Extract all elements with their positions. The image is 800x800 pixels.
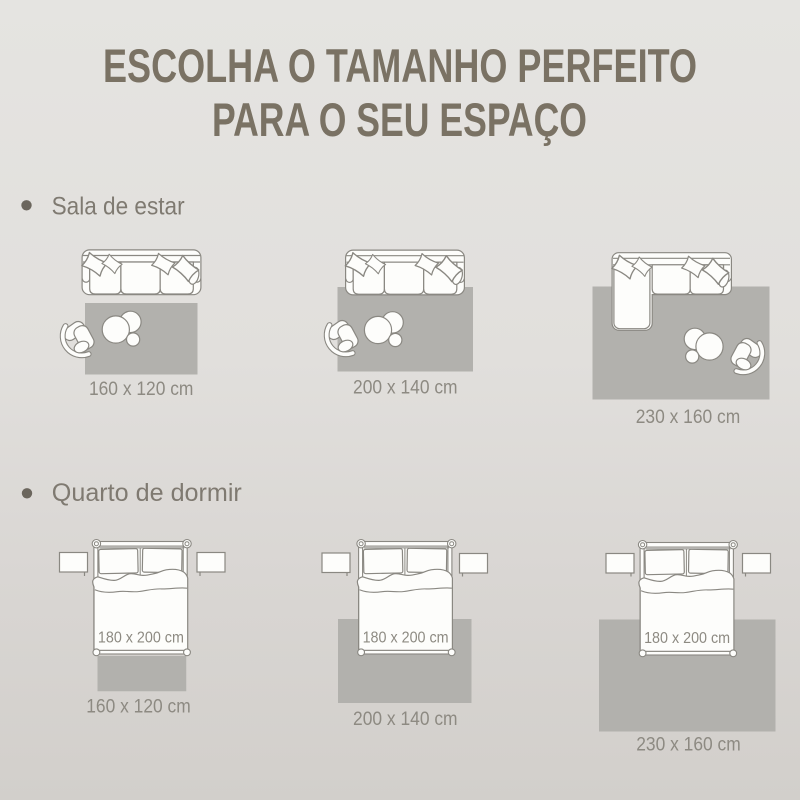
svg-text:200 x 140 cm: 200 x 140 cm [353, 377, 458, 399]
svg-text:200 x 140 cm: 200 x 140 cm [353, 708, 458, 730]
svg-text:180 x 200 cm: 180 x 200 cm [363, 629, 449, 646]
svg-text:180 x 200 cm: 180 x 200 cm [644, 630, 730, 647]
svg-text:160 x 120 cm: 160 x 120 cm [86, 695, 191, 717]
svg-text:ESCOLHA O TAMANHO PERFEITO: ESCOLHA O TAMANHO PERFEITO [103, 39, 697, 92]
svg-text:PARA O SEU ESPAÇO: PARA O SEU ESPAÇO [212, 93, 587, 146]
svg-text:230 x 160 cm: 230 x 160 cm [636, 406, 741, 428]
svg-text:230 x 160 cm: 230 x 160 cm [636, 734, 741, 756]
svg-text:160 x 120 cm: 160 x 120 cm [89, 378, 194, 400]
svg-text:Sala de estar: Sala de estar [52, 193, 185, 221]
svg-text:180 x 200 cm: 180 x 200 cm [98, 629, 184, 646]
svg-text:Quarto de dormir: Quarto de dormir [52, 479, 242, 507]
